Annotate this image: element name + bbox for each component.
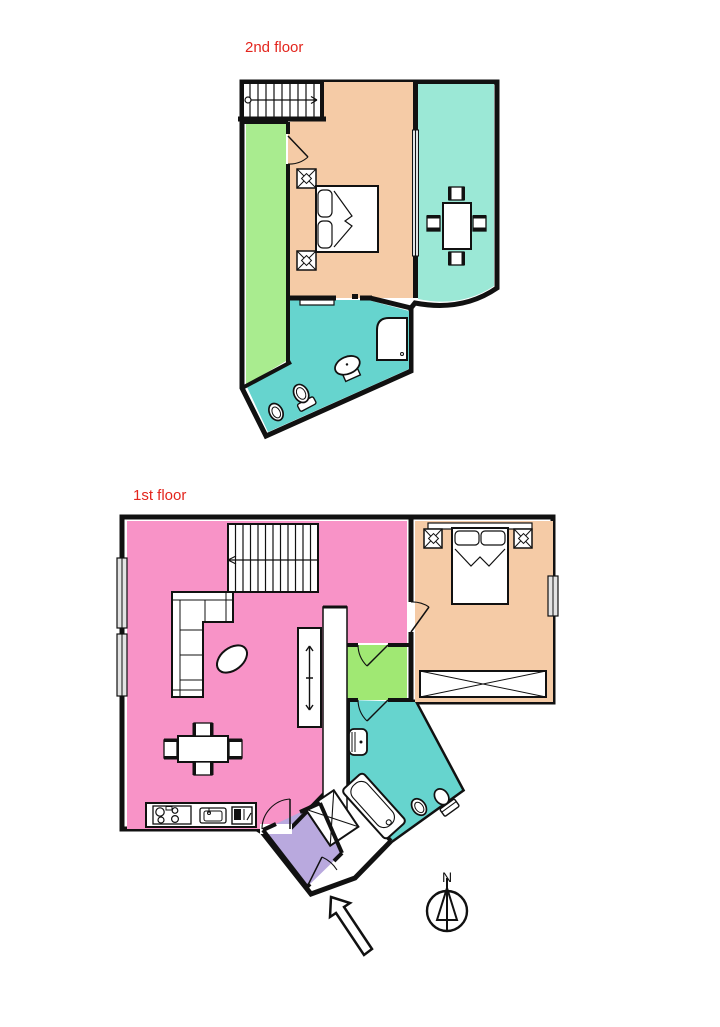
window-icon <box>548 576 558 616</box>
sliding-door-icon-2f <box>300 300 334 305</box>
entrance-arrow-icon <box>330 897 372 955</box>
window-icon <box>117 634 127 696</box>
window-icon <box>117 558 127 628</box>
shower-icon-2f <box>377 318 407 360</box>
bed-icon-2f <box>316 186 378 252</box>
kitchen-sink-icon <box>200 808 226 823</box>
stove-icon <box>153 806 191 824</box>
compass-icon: N <box>427 869 467 931</box>
nightstand-icon <box>424 529 442 548</box>
bathroom-sink-icon-1f <box>349 729 367 755</box>
stairs-icon-2f <box>242 82 322 119</box>
wardrobe-icon <box>420 671 546 697</box>
first-floor-label: 1st floor <box>133 487 186 504</box>
window-icon-divider-2f <box>413 130 419 256</box>
sideboard-icon <box>298 628 321 727</box>
floorplan-canvas: 2nd floor <box>0 0 720 1027</box>
second-floor-plan: 2nd floor <box>238 39 497 436</box>
kitchen-counter <box>146 803 256 827</box>
nightstand-icon <box>297 169 316 188</box>
nightstand-icon <box>514 529 532 548</box>
nightstand-icon <box>297 251 316 270</box>
dishwasher-icon <box>232 807 252 824</box>
vestibule-room-1f <box>347 645 407 700</box>
first-floor-plan: 1st floor <box>117 487 558 955</box>
door-stop-2f <box>352 294 358 299</box>
stairs-icon-1f <box>228 524 318 592</box>
second-floor-label: 2nd floor <box>245 39 303 56</box>
terrace-room-2f <box>246 124 286 385</box>
